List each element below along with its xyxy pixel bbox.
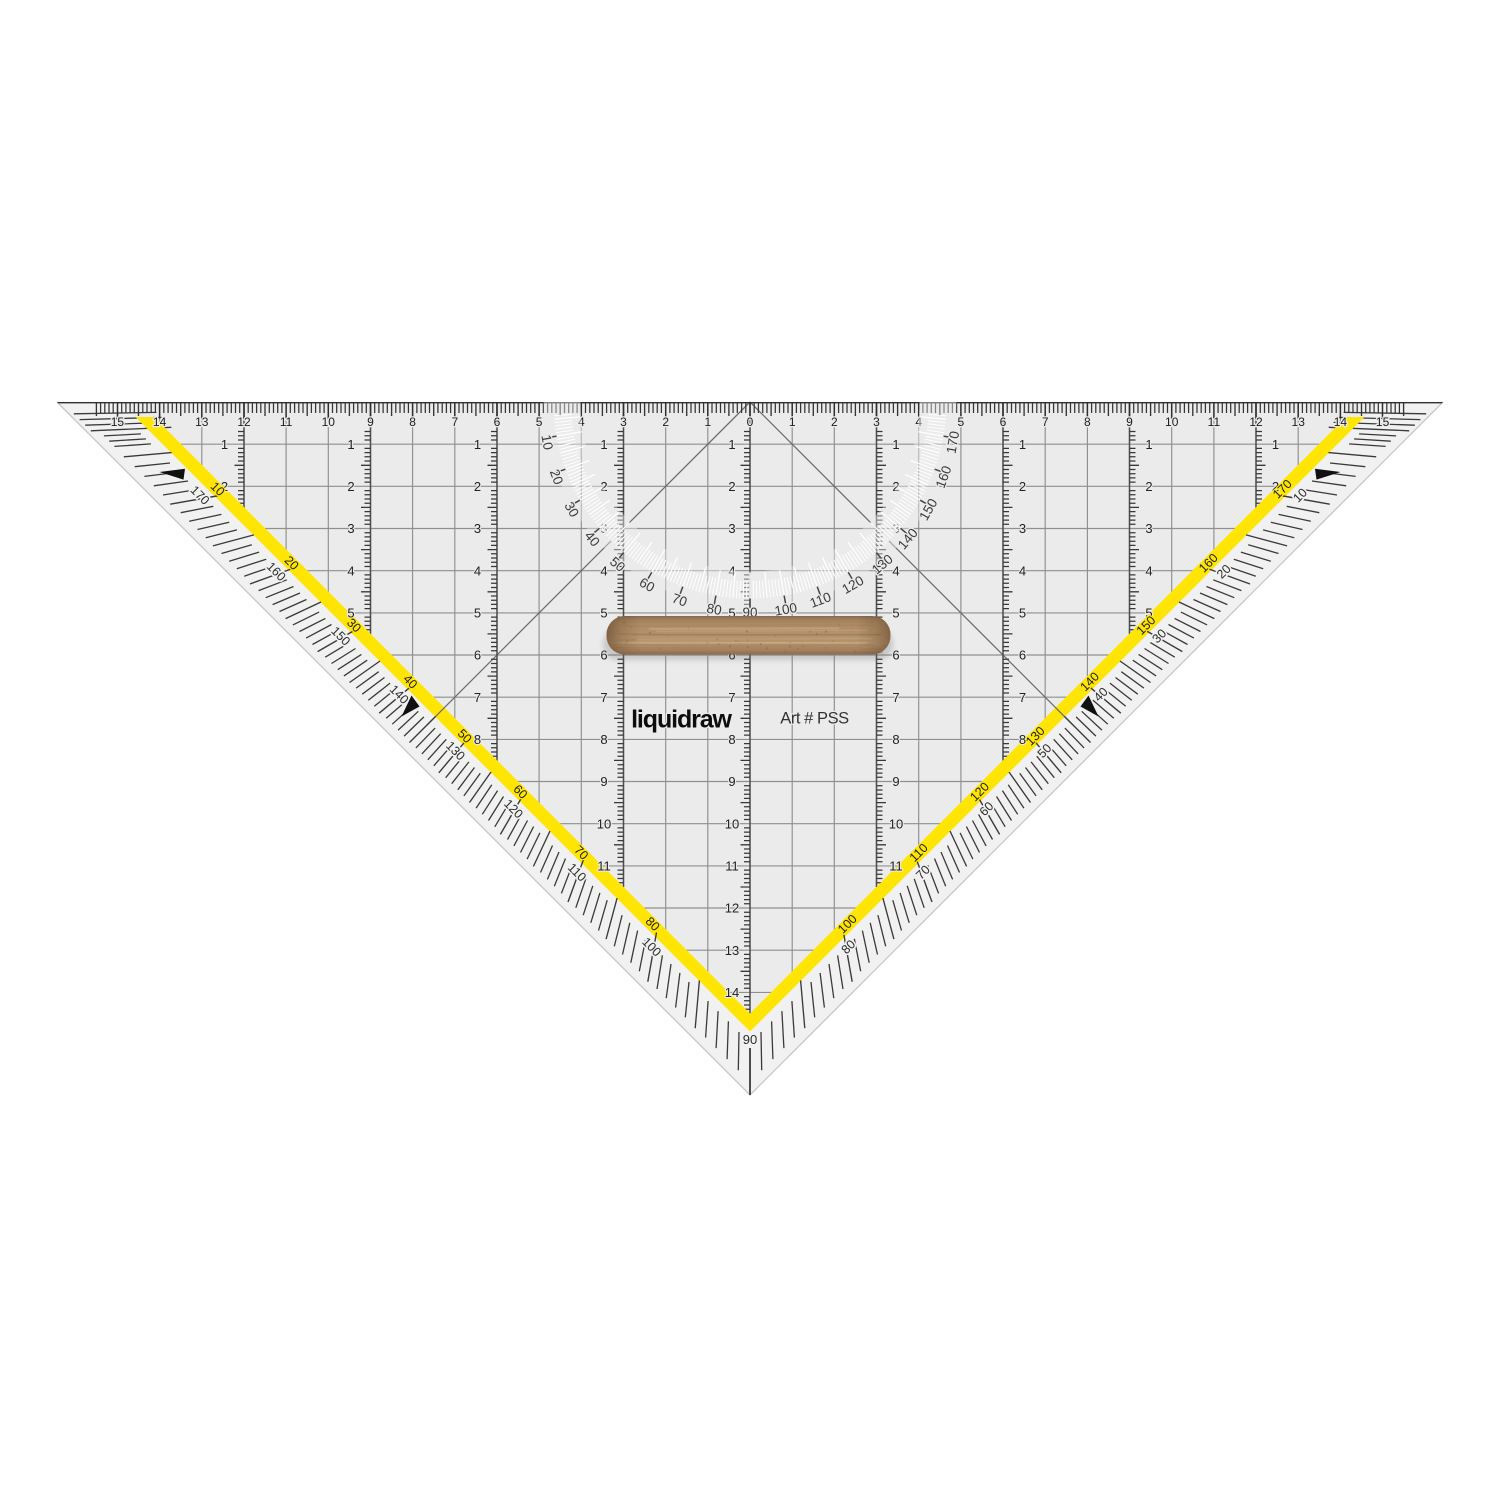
svg-text:6: 6 [892, 648, 899, 663]
svg-text:8: 8 [474, 732, 481, 747]
svg-text:12: 12 [1249, 415, 1263, 429]
svg-text:4: 4 [1019, 563, 1026, 578]
svg-text:8: 8 [409, 415, 416, 429]
svg-text:12: 12 [237, 415, 251, 429]
svg-text:10: 10 [889, 816, 903, 831]
svg-text:5: 5 [600, 606, 607, 621]
svg-text:5: 5 [892, 606, 899, 621]
svg-text:8: 8 [728, 732, 735, 747]
svg-text:13: 13 [195, 415, 209, 429]
svg-text:6: 6 [494, 415, 501, 429]
svg-text:3: 3 [1145, 521, 1152, 536]
svg-text:10: 10 [322, 415, 336, 429]
svg-text:0: 0 [747, 415, 754, 429]
svg-text:1: 1 [728, 437, 735, 452]
svg-text:liquidraw: liquidraw [631, 706, 732, 734]
svg-text:9: 9 [728, 774, 735, 789]
svg-text:7: 7 [600, 690, 607, 705]
svg-text:14: 14 [1334, 415, 1348, 429]
svg-text:4: 4 [892, 563, 899, 578]
svg-text:15: 15 [111, 415, 125, 429]
svg-text:11: 11 [725, 859, 739, 874]
svg-text:3: 3 [728, 521, 735, 536]
svg-text:5: 5 [1019, 606, 1026, 621]
svg-text:6: 6 [1019, 648, 1026, 663]
svg-text:9: 9 [600, 774, 607, 789]
svg-text:3: 3 [1019, 521, 1026, 536]
svg-text:11: 11 [597, 859, 611, 874]
svg-text:15: 15 [1376, 415, 1390, 429]
svg-text:9: 9 [892, 774, 899, 789]
svg-text:9: 9 [1126, 415, 1133, 429]
svg-text:3: 3 [873, 415, 880, 429]
svg-text:1: 1 [892, 437, 899, 452]
svg-text:9: 9 [367, 415, 374, 429]
svg-text:11: 11 [280, 415, 293, 429]
svg-text:11: 11 [1208, 415, 1221, 429]
svg-text:10: 10 [725, 816, 739, 831]
svg-text:12: 12 [725, 901, 739, 916]
svg-text:3: 3 [620, 415, 627, 429]
svg-text:7: 7 [728, 690, 735, 705]
svg-text:80: 80 [705, 601, 722, 618]
svg-text:4: 4 [347, 563, 354, 578]
svg-text:7: 7 [1019, 690, 1026, 705]
svg-text:6: 6 [474, 648, 481, 663]
svg-text:3: 3 [474, 521, 481, 536]
svg-text:7: 7 [474, 690, 481, 705]
svg-text:7: 7 [1042, 415, 1049, 429]
svg-text:Art # PSS: Art # PSS [780, 710, 849, 728]
svg-text:2: 2 [347, 479, 354, 494]
svg-text:4: 4 [474, 563, 481, 578]
svg-text:1: 1 [347, 437, 354, 452]
svg-text:2: 2 [831, 415, 838, 429]
svg-text:1: 1 [221, 437, 228, 452]
svg-text:4: 4 [600, 563, 607, 578]
svg-text:1: 1 [704, 415, 711, 429]
svg-text:7: 7 [451, 415, 458, 429]
svg-text:10: 10 [538, 434, 555, 451]
svg-text:5: 5 [536, 415, 543, 429]
svg-text:5: 5 [474, 606, 481, 621]
svg-text:14: 14 [153, 415, 167, 429]
svg-text:13: 13 [725, 943, 739, 958]
svg-text:1: 1 [474, 437, 481, 452]
svg-text:2: 2 [662, 415, 669, 429]
svg-text:7: 7 [892, 690, 899, 705]
svg-text:2: 2 [728, 479, 735, 494]
svg-text:10: 10 [597, 816, 611, 831]
svg-text:10: 10 [1165, 415, 1179, 429]
svg-text:11: 11 [889, 859, 903, 874]
svg-text:2: 2 [474, 479, 481, 494]
svg-text:2: 2 [1019, 479, 1026, 494]
svg-text:5: 5 [958, 415, 965, 429]
svg-text:90: 90 [743, 1032, 757, 1047]
svg-text:1: 1 [1145, 437, 1152, 452]
svg-text:3: 3 [347, 521, 354, 536]
svg-text:4: 4 [1145, 563, 1152, 578]
svg-text:14: 14 [725, 985, 739, 1000]
svg-text:2: 2 [1145, 479, 1152, 494]
svg-text:8: 8 [600, 732, 607, 747]
svg-text:1: 1 [1272, 437, 1279, 452]
svg-text:13: 13 [1292, 415, 1306, 429]
svg-text:6: 6 [1000, 415, 1007, 429]
svg-text:1: 1 [789, 415, 796, 429]
svg-text:1: 1 [1019, 437, 1026, 452]
svg-text:8: 8 [1084, 415, 1091, 429]
svg-text:1: 1 [600, 437, 607, 452]
svg-text:8: 8 [892, 732, 899, 747]
